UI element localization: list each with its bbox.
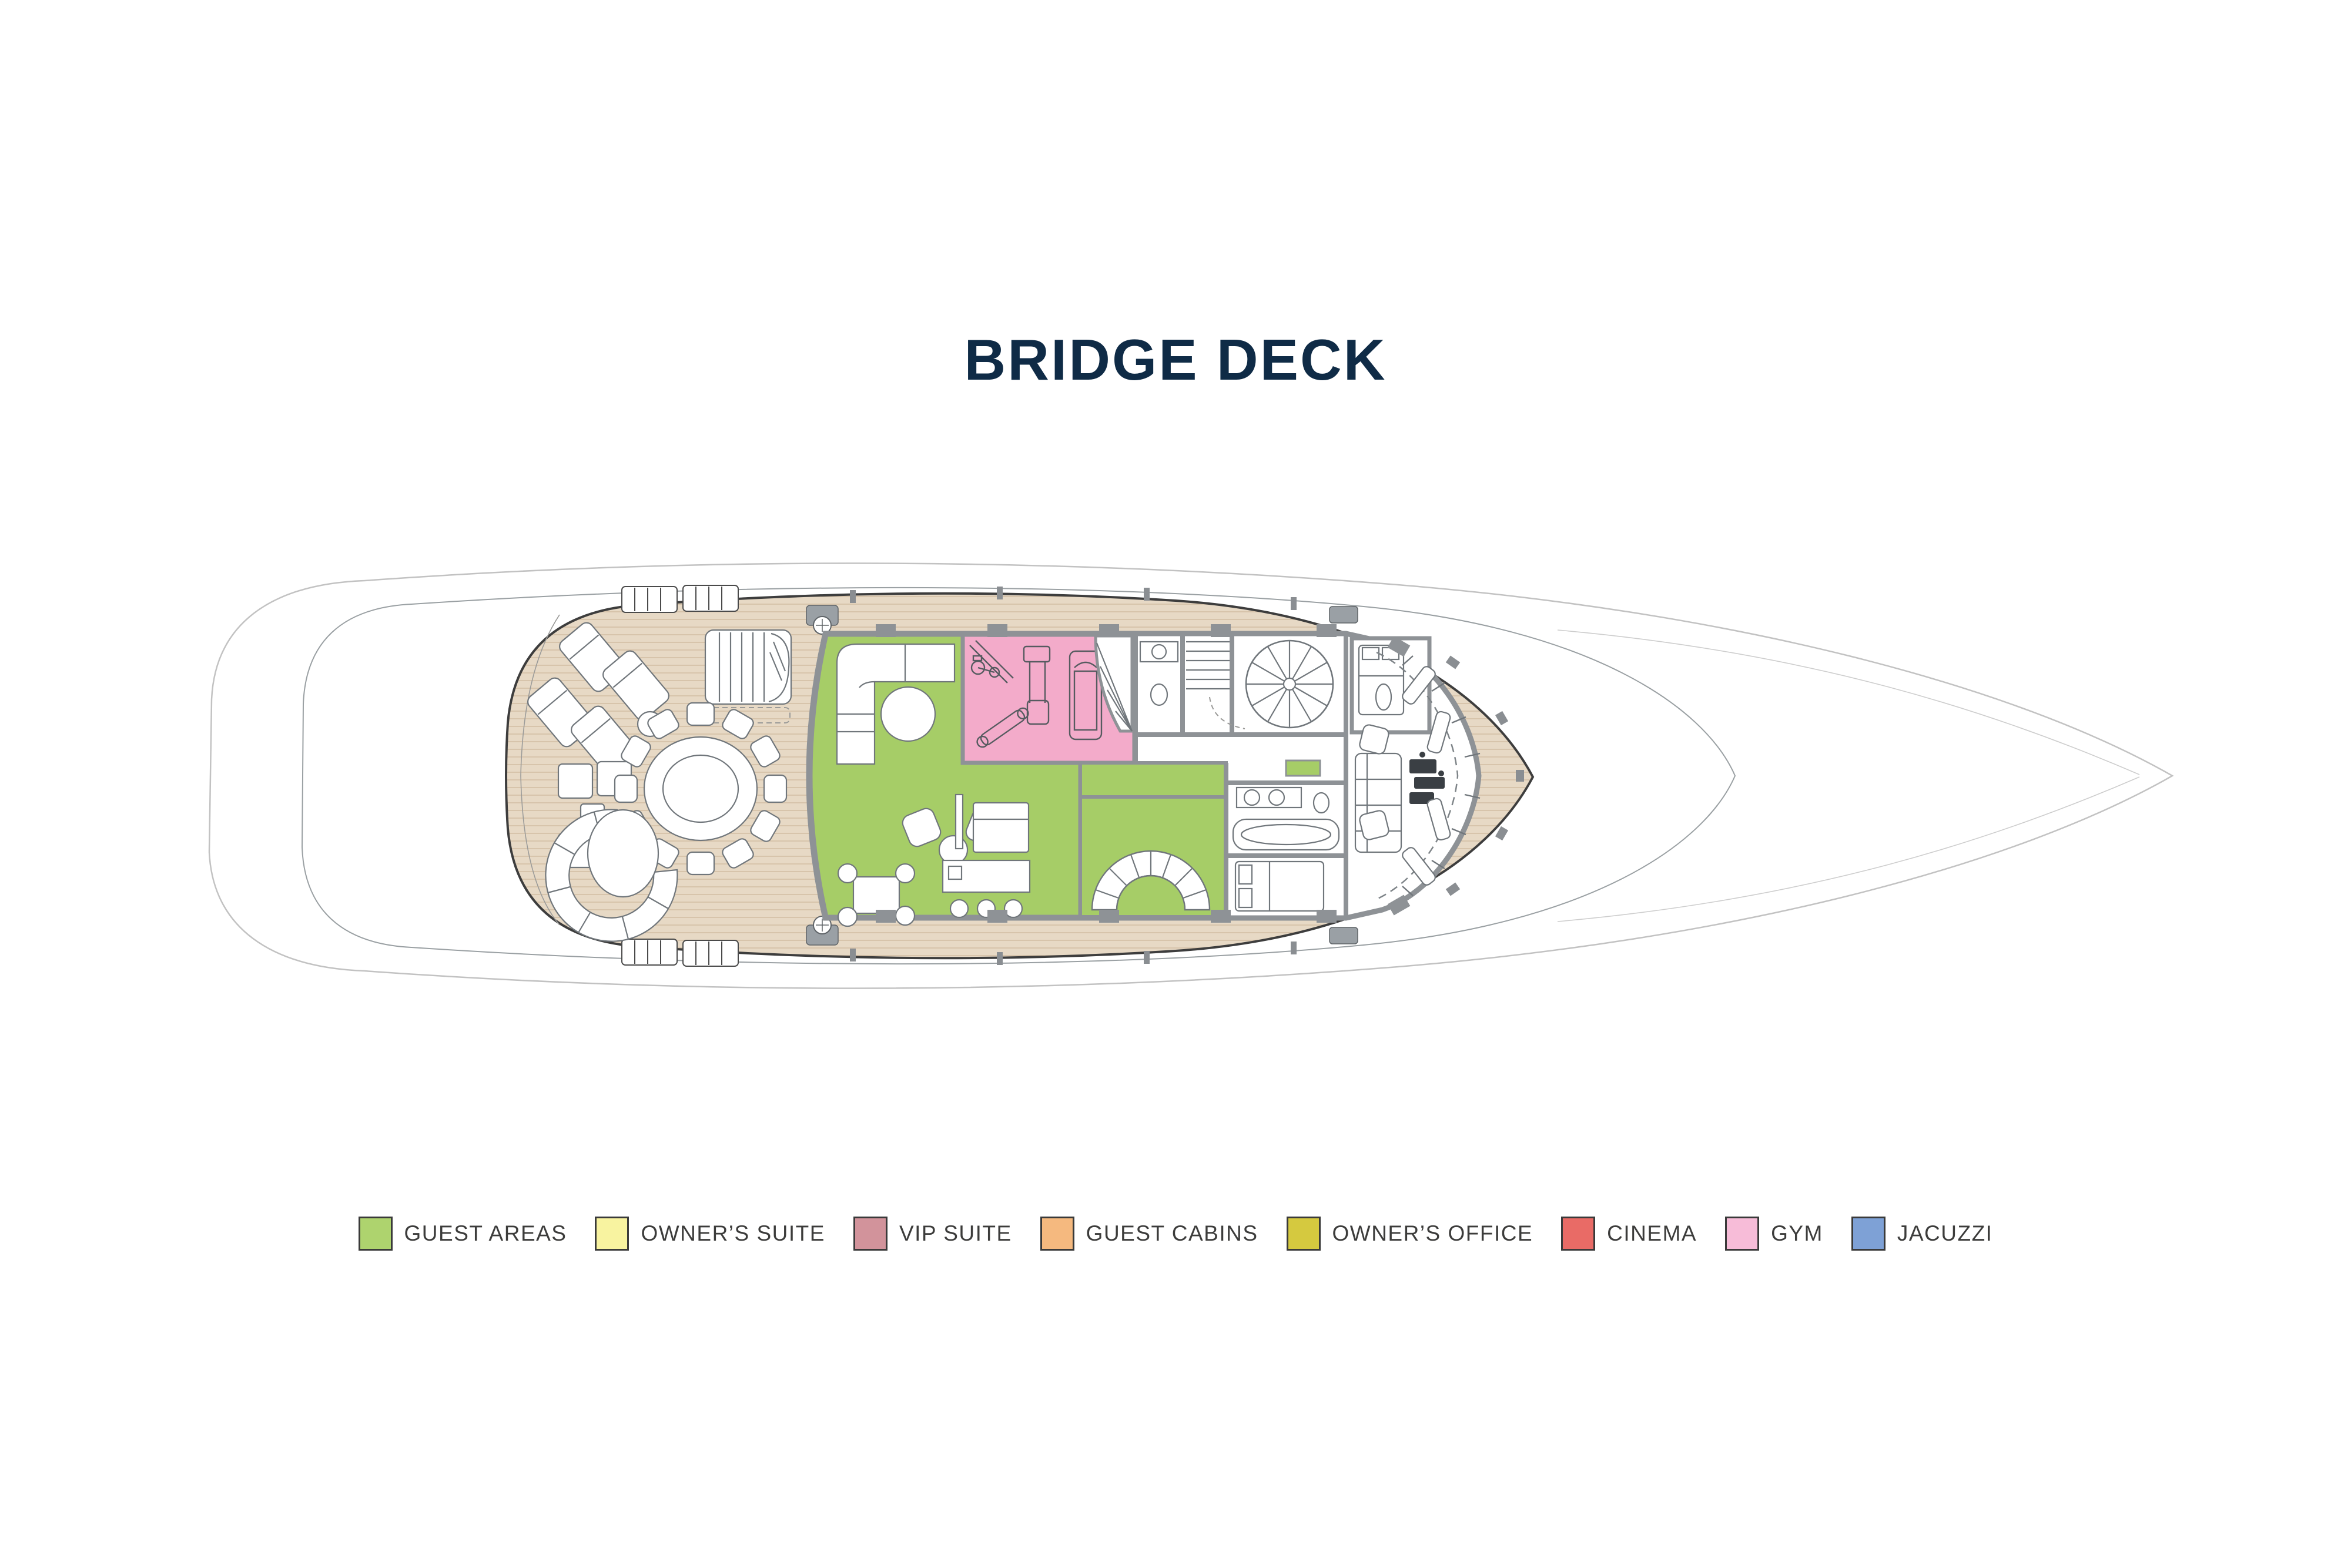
legend-swatch-owners-suite <box>595 1217 629 1251</box>
legend: GUEST AREAS OWNER’S SUITE VIP SUITE GUES… <box>0 1217 2351 1251</box>
captain-chair <box>1358 723 1389 755</box>
deck-plan-figure <box>0 0 2351 1568</box>
corridor-cabinet <box>1286 760 1320 776</box>
legend-label: GUEST CABINS <box>1086 1221 1258 1246</box>
legend-item-jacuzzi: JACUZZI <box>1851 1217 1993 1251</box>
dining-table <box>644 737 757 840</box>
guest-cabin <box>1235 862 1324 911</box>
toilet <box>1314 793 1329 813</box>
legend-label: GUEST AREAS <box>404 1221 567 1246</box>
day-bed <box>973 803 1029 852</box>
game-table <box>853 877 899 913</box>
bed <box>1235 862 1324 911</box>
legend-item-gym: GYM <box>1725 1217 1823 1251</box>
legend-label: JACUZZI <box>1897 1221 1993 1246</box>
interior <box>809 624 1480 926</box>
toilet <box>1151 684 1167 705</box>
legend-item-guest-cabins: GUEST CABINS <box>1040 1217 1258 1251</box>
legend-item-owners-suite: OWNER’S SUITE <box>595 1217 825 1251</box>
bridge-deck-page: BRIDGE DECK <box>0 0 2351 1568</box>
legend-item-vip-suite: VIP SUITE <box>853 1217 1012 1251</box>
captain-chair <box>1358 809 1389 840</box>
legend-label: OWNER’S OFFICE <box>1332 1221 1533 1246</box>
sideboard <box>956 795 963 849</box>
legend-item-guest-areas: GUEST AREAS <box>359 1217 567 1251</box>
legend-swatch-owners-office <box>1287 1217 1321 1251</box>
legend-item-owners-office: OWNER’S OFFICE <box>1287 1217 1533 1251</box>
oval-cocktail-table <box>588 810 658 897</box>
bar-counter <box>943 860 1030 892</box>
spiral-staircase <box>1246 641 1333 728</box>
legend-swatch-jacuzzi <box>1851 1217 1886 1251</box>
legend-swatch-guest-areas <box>359 1217 393 1251</box>
legend-label: OWNER’S SUITE <box>641 1221 825 1246</box>
legend-swatch-vip-suite <box>853 1217 888 1251</box>
legend-label: GYM <box>1771 1221 1823 1246</box>
legend-label: CINEMA <box>1607 1221 1697 1246</box>
legend-label: VIP SUITE <box>899 1221 1012 1246</box>
legend-swatch-gym <box>1725 1217 1759 1251</box>
legend-swatch-guest-cabins <box>1040 1217 1074 1251</box>
legend-item-cinema: CINEMA <box>1561 1217 1697 1251</box>
guest-area-corridor <box>1080 763 1226 797</box>
bathtub <box>1233 819 1339 850</box>
legend-swatch-cinema <box>1561 1217 1595 1251</box>
coffee-table <box>881 687 935 741</box>
